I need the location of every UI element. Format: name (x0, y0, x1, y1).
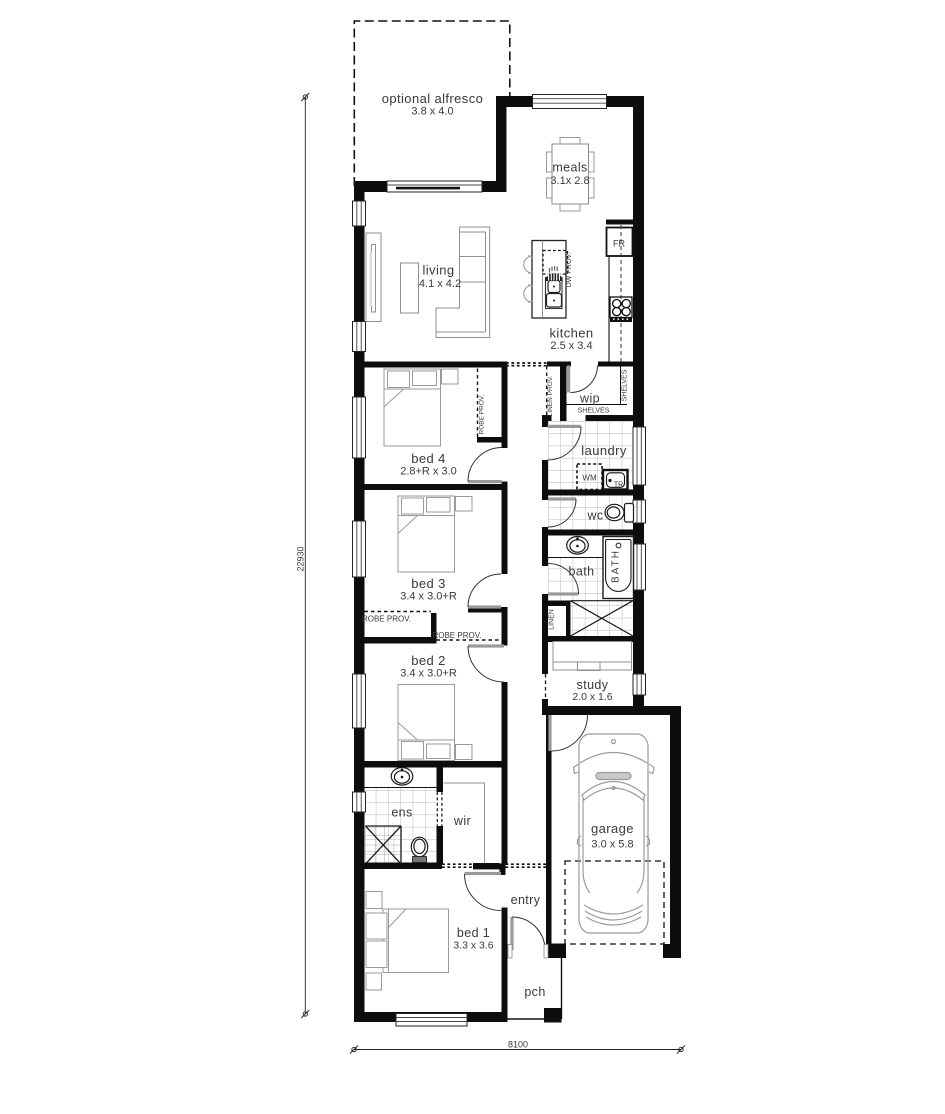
svg-text:optional alfresco: optional alfresco (382, 91, 483, 106)
svg-text:meals: meals (552, 161, 587, 175)
svg-text:3.4 x 3.0+R: 3.4 x 3.0+R (400, 668, 457, 680)
svg-text:FR: FR (613, 239, 625, 249)
svg-text:ROBE PROV.: ROBE PROV. (479, 394, 486, 434)
svg-text:garage: garage (591, 821, 634, 836)
svg-text:22930: 22930 (296, 546, 306, 571)
svg-text:wip: wip (579, 392, 600, 406)
svg-text:2.5 x 3.4: 2.5 x 3.4 (550, 340, 592, 352)
svg-text:ens: ens (391, 806, 412, 820)
svg-text:3.4 x 3.0+R: 3.4 x 3.0+R (400, 591, 457, 603)
svg-text:3.8 x 4.0: 3.8 x 4.0 (411, 106, 453, 118)
svg-text:WM: WM (582, 474, 597, 483)
svg-text:entry: entry (511, 893, 541, 907)
svg-text:2.8+R x 3.0: 2.8+R x 3.0 (400, 466, 457, 478)
svg-text:bed 1: bed 1 (457, 926, 490, 940)
svg-text:LINEN: LINEN (549, 609, 556, 630)
svg-text:SHELVES: SHELVES (622, 369, 629, 401)
svg-text:pch: pch (524, 985, 545, 999)
svg-text:3.0 x 5.8: 3.0 x 5.8 (591, 839, 633, 851)
svg-text:4.1 x 4.2: 4.1 x 4.2 (419, 278, 461, 290)
svg-text:ROBE PROV.: ROBE PROV. (432, 631, 481, 640)
svg-text:BATH: BATH (611, 549, 622, 583)
svg-text:wc: wc (586, 509, 603, 523)
svg-text:bed 4: bed 4 (411, 451, 446, 466)
svg-text:TR: TR (614, 482, 623, 489)
svg-text:bed 3: bed 3 (411, 576, 446, 591)
svg-text:ROBE PROV.: ROBE PROV. (362, 615, 411, 624)
svg-text:wir: wir (453, 814, 471, 828)
svg-text:laundry: laundry (581, 443, 627, 458)
svg-text:kitchen: kitchen (550, 326, 594, 341)
svg-text:study: study (577, 678, 609, 692)
svg-text:3.3 x 3.6: 3.3 x 3.6 (453, 940, 493, 952)
svg-text:bath: bath (569, 565, 595, 579)
svg-text:8100: 8100 (508, 1040, 528, 1050)
svg-text:SHELVES: SHELVES (578, 408, 610, 415)
svg-text:2.0 x 1.6: 2.0 x 1.6 (572, 691, 612, 703)
svg-text:bed 2: bed 2 (411, 653, 446, 668)
svg-text:3.1x 2.8: 3.1x 2.8 (550, 175, 589, 187)
svg-text:living: living (422, 263, 454, 278)
svg-text:DW PROV.: DW PROV. (566, 253, 573, 288)
svg-text:LINEN PROV.: LINEN PROV. (547, 376, 554, 417)
